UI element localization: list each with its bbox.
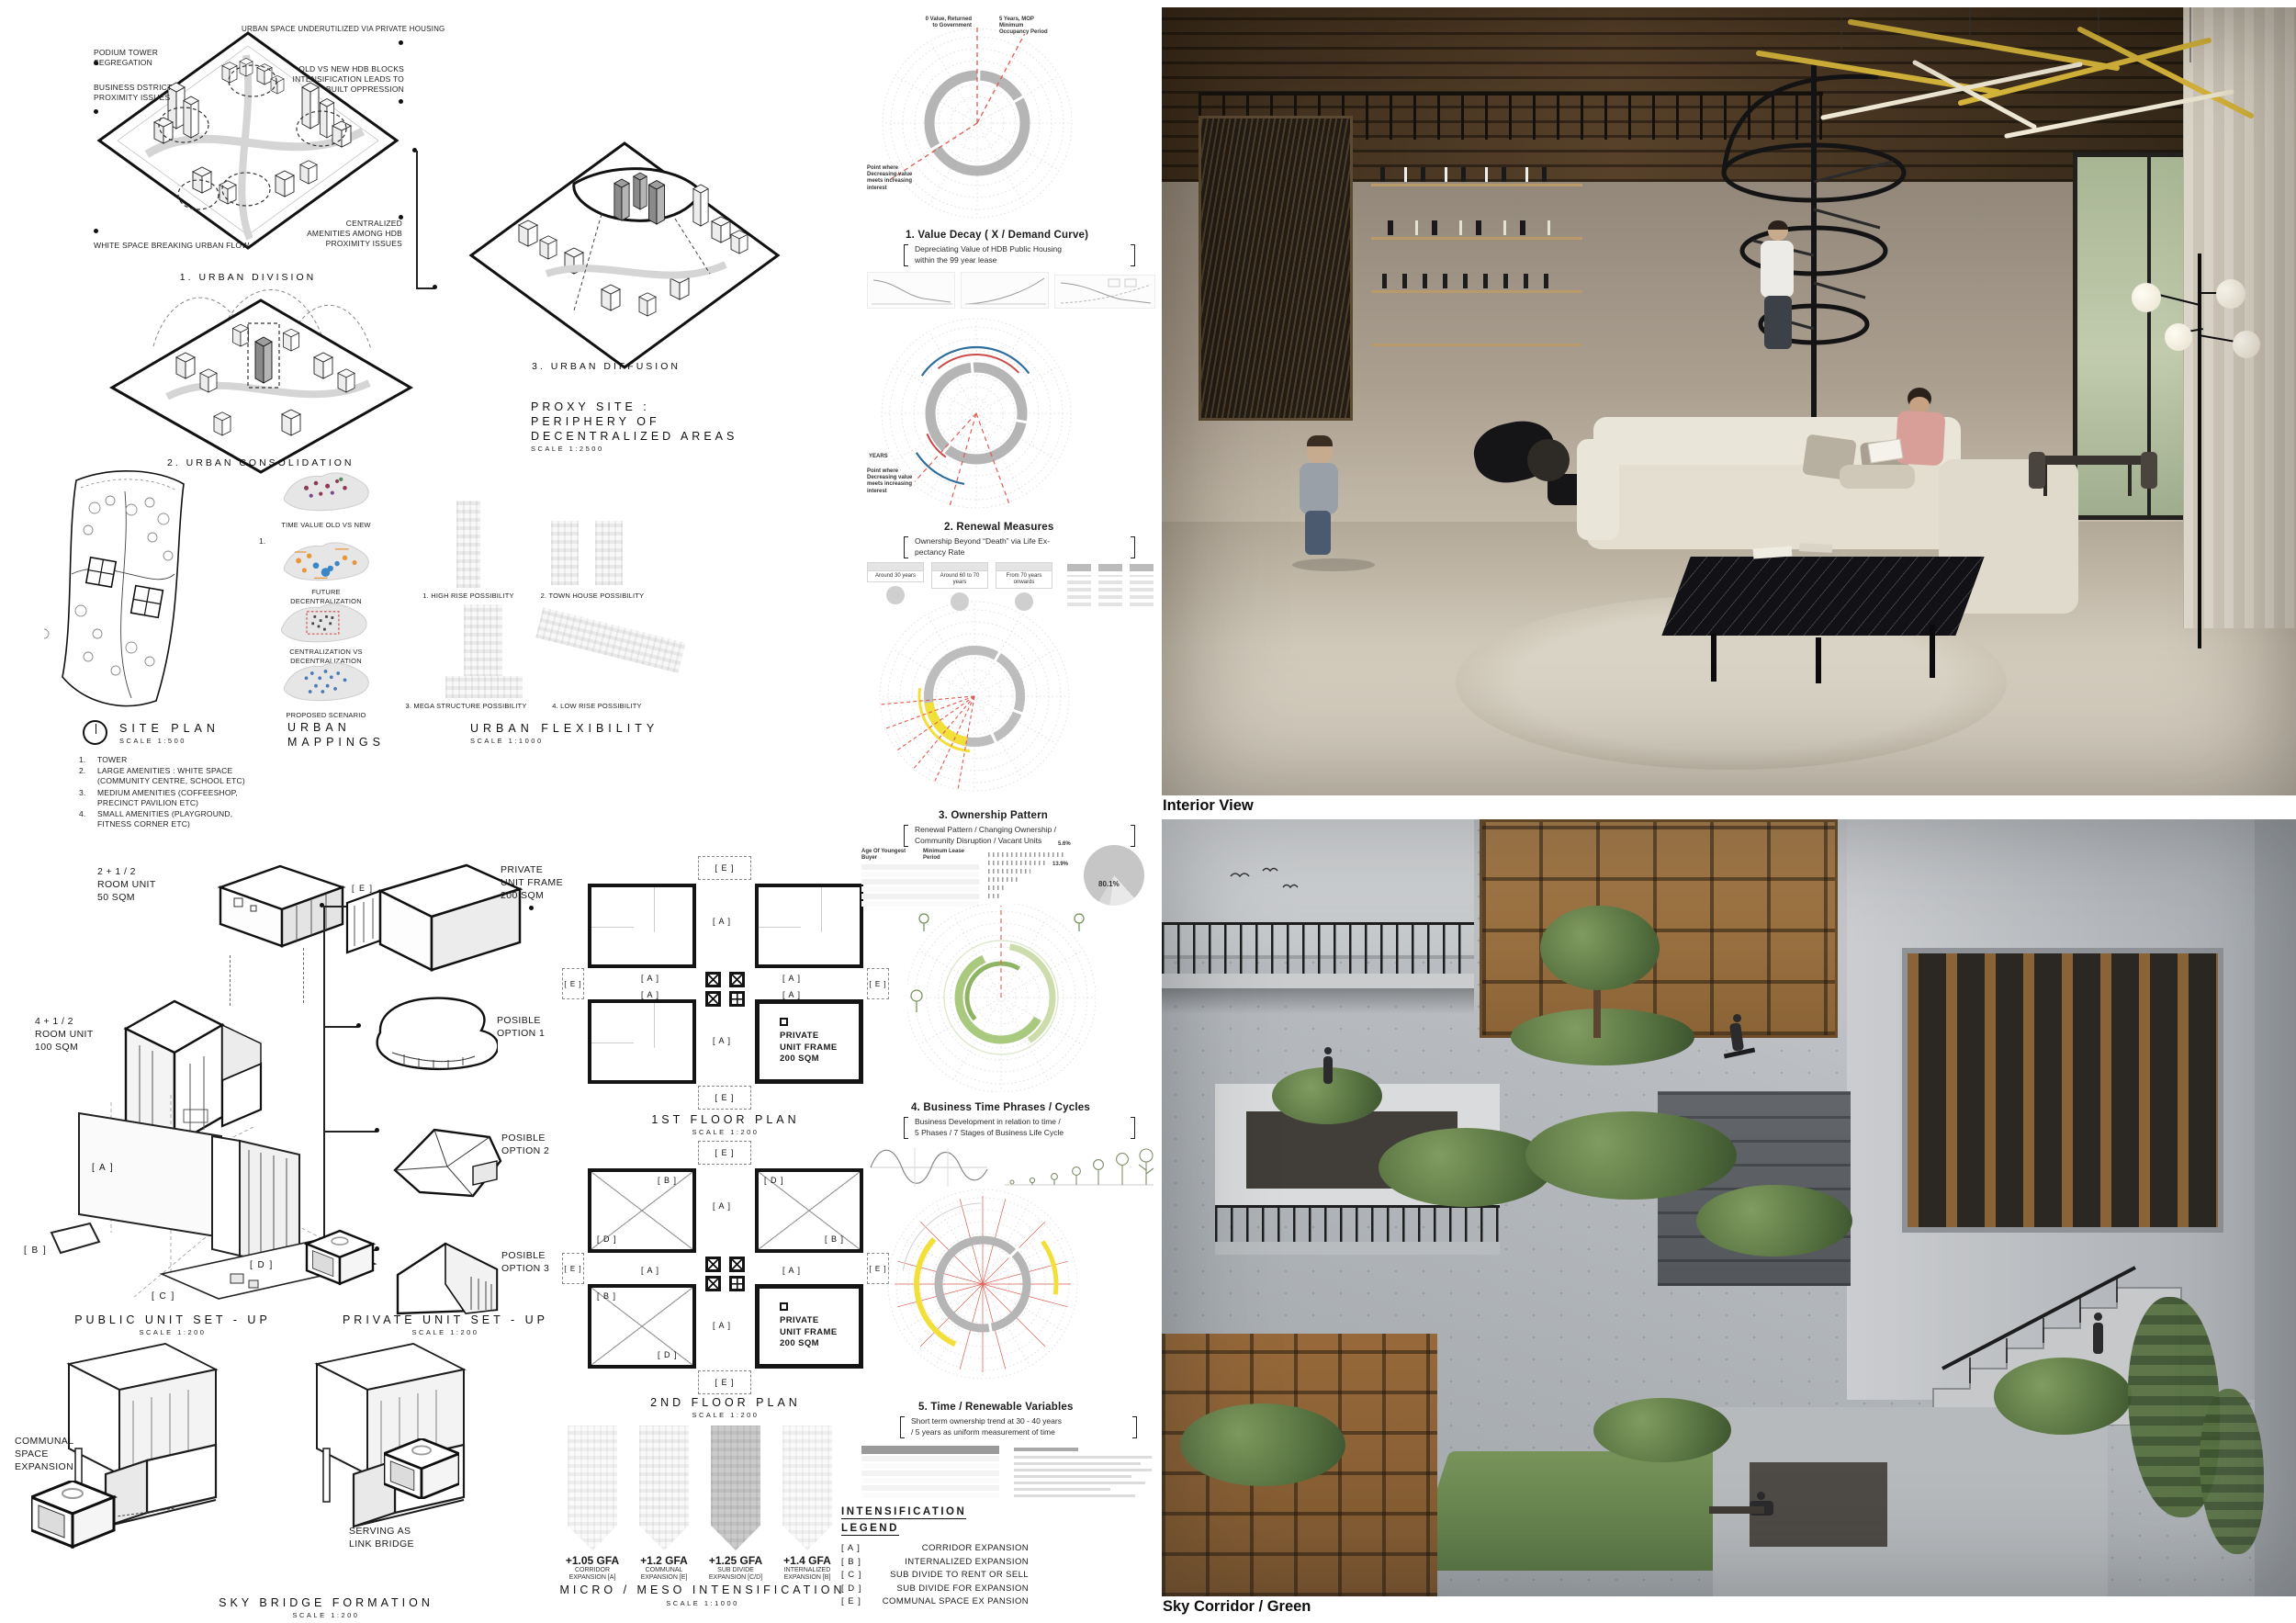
map-label-1: TIME VALUE OLD VS NEW <box>276 521 377 530</box>
large-unit-l2: ROOM UNIT <box>35 1028 94 1041</box>
table-row <box>861 886 979 892</box>
time-variables-title: 5. Time / Renewable Variables <box>918 1402 1074 1413</box>
plan1-e-top: [ E ] <box>715 863 734 873</box>
low-rise-glyph <box>535 607 685 673</box>
plan1-frame-l3: 200 SQM <box>780 1054 859 1065</box>
micro-meso-title: MICRO / MESO INTENSIFICATION <box>551 1584 854 1596</box>
communal-l1: COMMUNAL <box>15 1435 73 1448</box>
option1-label: POSIBLEOPTION 1 <box>497 1014 545 1040</box>
business-title: 4. Business Time Phrases / Cycles <box>911 1102 1090 1113</box>
plan1-quad-tl <box>588 884 696 968</box>
private-frame-iso <box>329 852 526 981</box>
plan2-e-bottom: [ E ] <box>715 1378 734 1387</box>
callout-whitespace: WHITE SPACE BREAKING URBAN FLOW <box>94 241 249 251</box>
tower1-d1: CORRIDOR <box>558 1567 626 1574</box>
legend-val-e: COMMUNAL SPACE EX PANSION <box>876 1596 1029 1606</box>
tower3-label: +1.25 GFASUB DIVIDEEXPANSION [C/D] <box>702 1554 770 1583</box>
communal-l2: SPACE <box>15 1448 73 1460</box>
option3-label: POSIBLEOPTION 3 <box>501 1249 549 1275</box>
s5-paragraph <box>1014 1448 1152 1497</box>
legend-title-2: LEGEND <box>841 1523 899 1536</box>
bracket-right <box>1131 1117 1135 1139</box>
communal-expansion-label: COMMUNALSPACEEXPANSION <box>15 1435 73 1474</box>
small-unit-l2: ROOM UNIT <box>97 878 156 891</box>
pie-label-main: 80.1% <box>1098 880 1120 889</box>
value-decay-ann-govt: 0 Value, Returned to Government <box>924 17 972 29</box>
legend-num: 4. <box>79 809 97 829</box>
skybridge-title: SKY BRIDGE FORMATION <box>207 1596 445 1609</box>
plan1-wing-right: [ E ] <box>867 968 889 999</box>
public-tag-a: [ A ] <box>92 1163 114 1173</box>
plan2-quad-bl: [ B ][ D ] <box>588 1284 696 1369</box>
plan2-tag: [ D ] <box>764 1176 784 1185</box>
large-unit-l3: 100 SQM <box>35 1041 94 1054</box>
tower4-label: +1.4 GFAINTERNALIZEDEXPANSION [B] <box>773 1554 841 1583</box>
bracket-left <box>904 1117 908 1139</box>
intensification-tower-3 <box>711 1426 760 1550</box>
town-house-glyph <box>551 521 579 585</box>
link-l1: SERVING AS <box>349 1525 414 1538</box>
map-future-decentralization <box>277 535 374 588</box>
plan1-wing-left: [ E ] <box>562 968 584 999</box>
plan1-e-bottom: [ E ] <box>715 1093 734 1102</box>
vignette <box>1162 7 2296 795</box>
legend-key-e: [ E ] <box>841 1596 876 1606</box>
option3-l2: OPTION 3 <box>501 1262 549 1275</box>
public-setup-iso <box>24 1086 423 1315</box>
large-unit-l1: 4 + 1 / 2 <box>35 1015 94 1028</box>
ownership-pattern-radial <box>869 593 1080 797</box>
plan2-a-corridor-bottom: [ A ] <box>713 1321 731 1330</box>
option2-label: POSIBLEOPTION 2 <box>501 1132 549 1157</box>
urban-consolidation-diagram <box>103 259 420 475</box>
proxy-site-line1: PROXY SITE : <box>531 400 650 413</box>
option1-l1: POSIBLE <box>497 1014 545 1027</box>
calendar-icon <box>932 563 987 571</box>
map-proposed <box>277 656 374 708</box>
urban-diffusion-label: 3. URBAN DIFFUSION <box>514 361 698 372</box>
calendar-icon <box>996 563 1052 571</box>
private-setup-title: PRIVATE UNIT SET - UP <box>331 1313 560 1326</box>
legend-key-c: [ C ] <box>841 1570 876 1580</box>
table-header-age: Age Of Youngest Buyer <box>861 849 917 862</box>
frame-l2: UNIT FRAME <box>501 876 563 889</box>
communal-l3: EXPANSION <box>15 1460 73 1473</box>
card3-label: From 70 years onwards <box>996 571 1052 588</box>
plan1-a-corridor-bottom: [ A ] <box>713 1036 731 1045</box>
value-decay-radial <box>874 6 1076 226</box>
plan1-e-right: [ E ] <box>869 980 886 988</box>
interior-view-render <box>1162 7 2296 795</box>
legend-val-d: SUB DIVIDE FOR EXPANSION <box>876 1584 1029 1594</box>
public-setup-scale: SCALE 1:200 <box>53 1328 292 1336</box>
flex-option-4: 4. LOW RISE POSSIBILITY <box>542 702 652 711</box>
callout-oldnew: OLD VS NEW HDB BLOCKS INTENSIFICATION LE… <box>292 64 404 96</box>
s1-chart-thumb <box>867 272 955 309</box>
legend-val-c: SUB DIVIDE TO RENT OR SELL <box>876 1570 1029 1580</box>
value-decay-ann-point: Point where Decreasing value meets incre… <box>867 165 918 192</box>
callout-dot <box>399 215 403 220</box>
callout-dot <box>399 99 403 104</box>
s4-sub1: Business Development in relation to time… <box>915 1117 1124 1128</box>
table-row <box>861 864 979 870</box>
map-marker: 1. <box>259 536 266 547</box>
business-cycles-radial <box>907 904 1096 1092</box>
option2-l2: OPTION 2 <box>501 1144 549 1157</box>
public-tag-b: [ B ] <box>24 1245 47 1256</box>
link-l2: LINK BRIDGE <box>349 1538 414 1550</box>
proxy-site-scale: SCALE 1:2500 <box>531 445 604 453</box>
callout-dot <box>94 61 98 65</box>
bracket-right <box>1131 825 1135 847</box>
small-unit-label: 2 + 1 / 2ROOM UNIT50 SQM <box>97 865 156 905</box>
bracket-right <box>1131 244 1135 266</box>
skybridge-cluster-2 <box>266 1336 528 1538</box>
callout-dot <box>399 40 403 45</box>
s3-sub1: Renewal Pattern / Changing Ownership / <box>915 825 1124 836</box>
plan1-wing-bottom: [ E ] <box>698 1086 751 1110</box>
card2-label: Around 60 to 70 years <box>932 571 987 588</box>
tower3-d1: SUB DIVIDE <box>702 1567 770 1574</box>
tower1-d2: EXPANSION [A] <box>558 1574 626 1582</box>
business-subtitle: Business Development in relation to time… <box>904 1117 1135 1139</box>
table-row <box>861 894 979 899</box>
plan2-quad-tl: [ B ][ D ] <box>588 1168 696 1253</box>
projection-line <box>303 948 304 1003</box>
tower2-label: +1.2 GFACOMMUNALEXPANSION [E] <box>630 1554 698 1583</box>
s5-sub1: Short term ownership trend at 30 - 40 ye… <box>911 1416 1126 1427</box>
public-setup-title: PUBLIC UNIT SET - UP <box>53 1313 292 1326</box>
option1-l2: OPTION 1 <box>497 1027 545 1040</box>
plan2-wing-bottom: [ E ] <box>698 1370 751 1394</box>
second-floor-title: 2ND FLOOR PLAN <box>560 1396 891 1409</box>
flex-option-2: 2. TOWN HOUSE POSSIBILITY <box>537 592 647 601</box>
plan1-private-frame: PRIVATE UNIT FRAME 200 SQM <box>755 999 863 1084</box>
tower2-d1: COMMUNAL <box>630 1567 698 1574</box>
renewal-subtitle: Ownership Beyond “Death” via Life Ex-pec… <box>904 536 1135 558</box>
plan1-frame-l1: PRIVATE <box>780 1031 859 1043</box>
option1-iso <box>360 979 498 1076</box>
frame-icon <box>780 1018 788 1026</box>
plan2-a-mid: [ A ] <box>641 1266 659 1275</box>
presentation-board: URBAN SPACE UNDERUTILIZED VIA PRIVATE HO… <box>0 0 2296 1623</box>
plan2-core <box>729 1257 745 1272</box>
link-bridge-cube <box>384 1438 459 1499</box>
tower2-d2: EXPANSION [E] <box>630 1574 698 1582</box>
first-floor-plan: [ E ] [ A ] [ E ] [ E ] [ A ] [ A ] [ A … <box>562 856 889 1110</box>
legend-key-b: [ B ] <box>841 1557 876 1567</box>
ownership-pie <box>1084 845 1144 906</box>
legend-text: LARGE AMENITIES : WHITE SPACE (COMMUNITY… <box>97 766 267 786</box>
site-plan-title: SITE PLAN <box>119 722 219 735</box>
plan1-wing-top: [ E ] <box>698 856 751 880</box>
plan1-a-mid: [ A ] <box>782 990 801 999</box>
frame-l1: PRIVATE <box>501 863 563 876</box>
urban-mappings-title-2: MAPPINGS <box>287 736 385 749</box>
plan1-quad-tr <box>755 884 863 968</box>
callout-centralized: CENTRALIZED AMENITIES AMONG HDB PROXIMIT… <box>305 219 402 250</box>
ownership-subtitle: Renewal Pattern / Changing Ownership /Co… <box>904 825 1135 847</box>
link-bridge-label: SERVING ASLINK BRIDGE <box>349 1525 414 1550</box>
map-label-4: PROPOSED SCENARIO <box>280 711 372 720</box>
second-floor-scale: SCALE 1:200 <box>560 1411 891 1419</box>
frame-e-tag: [ E ] <box>352 884 374 893</box>
legend-text: SMALL AMENITIES (PLAYGROUND, FITNESS COR… <box>97 809 267 829</box>
vignette <box>1162 819 2296 1596</box>
bracket-left <box>904 825 908 847</box>
table-header-lease: Minimum Lease Period <box>923 849 979 862</box>
ownership-table: Age Of Youngest BuyerMinimum Lease Perio… <box>861 849 979 908</box>
plan2-wing-left: [ E ] <box>562 1253 584 1284</box>
bracket-right <box>1131 536 1135 558</box>
site-plan-drawing <box>44 464 214 716</box>
branch-line <box>323 1026 358 1028</box>
pie-label-mid: 13.9% <box>1052 862 1068 868</box>
plan2-a-mid: [ A ] <box>782 1266 801 1275</box>
plan2-tag: [ B ] <box>658 1176 677 1185</box>
north-arrow-icon <box>83 720 107 745</box>
skybridge-scale: SCALE 1:200 <box>207 1611 445 1619</box>
plan2-e-top: [ E ] <box>715 1148 734 1157</box>
map-time-value <box>277 467 374 517</box>
urban-mappings-title-1: URBAN <box>287 721 351 734</box>
s5-table <box>861 1446 999 1500</box>
plan1-core <box>729 972 745 987</box>
ownership-title: 3. Ownership Pattern <box>939 810 1048 821</box>
option2-l1: POSIBLE <box>501 1132 549 1144</box>
plan2-tag: [ B ] <box>597 1291 616 1301</box>
s2-sub2: pectancy Rate <box>915 547 1124 558</box>
town-house-glyph <box>595 521 623 585</box>
large-unit-label: 4 + 1 / 2ROOM UNIT100 SQM <box>35 1015 94 1054</box>
legend-num: 3. <box>79 788 97 808</box>
bracket-left <box>904 536 908 558</box>
plan2-frame-l1: PRIVATE <box>780 1315 859 1327</box>
table-row <box>861 879 979 885</box>
time-variables-subtitle: Short term ownership trend at 30 - 40 ye… <box>900 1416 1137 1438</box>
plan2-frame-l3: 200 SQM <box>780 1338 859 1350</box>
plan2-a-corridor-top: [ A ] <box>713 1201 731 1211</box>
proxy-site-line3: DECENTRALIZED AREAS <box>531 430 737 443</box>
tower1-label: +1.05 GFACORRIDOREXPANSION [A] <box>558 1554 626 1583</box>
legend-num: 2. <box>79 766 97 786</box>
frame-l3: 200 SQM <box>501 889 563 902</box>
s2-sub1: Ownership Beyond “Death” via Life Ex- <box>915 536 1124 547</box>
callout-podium: PODIUM TOWER SEGREGATION <box>94 48 204 68</box>
proxy-site-line2: PERIPHERY OF <box>531 415 660 428</box>
sky-corridor-caption: Sky Corridor / Green <box>1163 1598 1311 1616</box>
plan1-quad-bl <box>588 999 696 1084</box>
plan2-private-frame: PRIVATE UNIT FRAME 200 SQM <box>755 1284 863 1369</box>
plan1-e-left: [ E ] <box>564 980 581 988</box>
plan2-tag: [ D ] <box>597 1234 617 1244</box>
bracket-left <box>900 1416 905 1438</box>
public-tag-c: [ C ] <box>152 1291 175 1302</box>
legend-val-b: INTERNALIZED EXPANSION <box>876 1557 1029 1567</box>
first-floor-scale: SCALE 1:200 <box>560 1128 891 1136</box>
renewal-title: 2. Renewal Measures <box>944 522 1054 533</box>
flex-option-1: 1. HIGH RISE POSSIBILITY <box>413 592 523 601</box>
plan2-core-plus <box>729 1276 745 1291</box>
renewal-stats <box>1067 564 1154 612</box>
tower4-d2: EXPANSION [B] <box>773 1574 841 1582</box>
intensification-tower-1 <box>568 1426 617 1550</box>
legend-key-d: [ D ] <box>841 1584 876 1594</box>
small-unit-l3: 50 SQM <box>97 891 156 904</box>
private-frame-label: PRIVATEUNIT FRAME200 SQM <box>501 863 563 903</box>
site-plan-legend: 1.TOWER 2.LARGE AMENITIES : WHITE SPACE … <box>79 755 267 830</box>
tower3-d2: EXPANSION [C/D] <box>702 1574 770 1582</box>
connector-dot <box>433 285 437 289</box>
plan2-tag: [ D ] <box>658 1350 678 1359</box>
plan2-wing-top: [ E ] <box>698 1141 751 1165</box>
legend-val-a: CORRIDOR EXPANSION <box>876 1543 1029 1553</box>
option3-l1: POSIBLE <box>501 1249 549 1262</box>
s1-sub1: Depreciating Value of HDB Public Housing <box>915 244 1124 255</box>
intensification-tower-2 <box>639 1426 689 1550</box>
s1-chart-thumb <box>1054 275 1155 309</box>
s5-sub2: / 5 years as uniform measurement of time <box>911 1427 1126 1438</box>
calendar-icon <box>868 563 923 571</box>
urban-flexibility-scale: SCALE 1:1000 <box>470 737 544 745</box>
tower2-gfa: +1.2 GFA <box>630 1554 698 1567</box>
value-decay-ann-mop: 5 Years, MOP Minimum Occupancy Period <box>999 17 1051 37</box>
s4-sub2: 5 Phases / 7 Stages of Business Life Cyc… <box>915 1128 1124 1139</box>
time-variables-radial <box>880 1185 1086 1382</box>
frame-dot <box>529 906 534 910</box>
tower3-gfa: +1.25 GFA <box>702 1554 770 1567</box>
table-row <box>861 872 979 877</box>
legend-title-1: INTENSIFICATION <box>841 1506 966 1519</box>
mega-structure-podium <box>445 676 523 698</box>
plan1-core <box>705 991 721 1007</box>
micro-meso-scale: SCALE 1:1000 <box>551 1599 854 1607</box>
plan1-a-mid: [ A ] <box>641 974 659 983</box>
flex-option-3: 3. MEGA STRUCTURE POSSIBILITY <box>404 702 528 711</box>
plan2-tag: [ B ] <box>825 1234 844 1244</box>
mega-structure-glyph <box>464 604 502 678</box>
urban-flexibility-title: URBAN FLEXIBILITY <box>470 722 658 735</box>
plan2-e-left: [ E ] <box>564 1265 581 1273</box>
bracket-left <box>904 244 908 266</box>
callout-dot <box>94 109 98 114</box>
frame-icon <box>780 1302 788 1311</box>
private-setup-scale: SCALE 1:200 <box>331 1328 560 1336</box>
card1-label: Around 30 years <box>868 571 923 581</box>
first-floor-title: 1ST FLOOR PLAN <box>560 1113 891 1126</box>
sky-corridor-render <box>1162 819 2296 1596</box>
value-decay-subtitle: Depreciating Value of HDB Public Housing… <box>904 244 1135 266</box>
interior-view-caption: Interior View <box>1163 797 1254 815</box>
legend-text: MEDIUM AMENITIES (COFFEESHOP, PRECINCT P… <box>97 788 267 808</box>
plan2-frame-l2: UNIT FRAME <box>780 1327 859 1339</box>
plan1-frame-l2: UNIT FRAME <box>780 1043 859 1054</box>
s1-sub2: within the 99 year lease <box>915 255 1124 266</box>
ownership-tally <box>988 852 1064 898</box>
intensification-tower-4 <box>782 1426 832 1550</box>
plan2-quad-tr: [ D ][ B ] <box>755 1168 863 1253</box>
s1-chart-thumb <box>961 272 1049 309</box>
legend-num: 1. <box>79 755 97 765</box>
tower4-d1: INTERNALIZED <box>773 1567 841 1574</box>
plan1-a-corridor-top: [ A ] <box>713 917 731 926</box>
bracket-right <box>1132 1416 1137 1438</box>
urban-diffusion-diagram <box>464 136 785 389</box>
intensification-legend: INTENSIFICATION LEGEND [ A ]CORRIDOR EXP… <box>841 1503 1029 1606</box>
second-floor-plan: [ E ] [ B ][ D ] [ D ][ B ] [ A ] [ E ] … <box>562 1141 889 1394</box>
public-tag-d: [ D ] <box>250 1260 274 1270</box>
s3-sub2: Community Disruption / Vacant Units <box>915 836 1124 847</box>
map-centralization <box>273 598 374 648</box>
legend-text: TOWER <box>97 755 267 765</box>
communal-cube <box>31 1481 118 1554</box>
plan2-core <box>705 1257 721 1272</box>
renewal-ann-point: Point where Decreasing value meets incre… <box>867 468 918 495</box>
legend-key-a: [ A ] <box>841 1543 876 1553</box>
pie-label-small: 5.6% <box>1058 841 1071 848</box>
plan2-core <box>705 1276 721 1291</box>
callout-business: BUSINESS DSTRICT PROXIMITY ISSUES <box>94 83 182 103</box>
renewal-axis-label: YEARS <box>869 454 888 460</box>
small-unit-l1: 2 + 1 / 2 <box>97 865 156 878</box>
tower1-gfa: +1.05 GFA <box>558 1554 626 1567</box>
callout-dot <box>94 229 98 233</box>
plan1-core-plus <box>729 991 745 1007</box>
value-decay-title: 1. Value Decay ( X / Demand Curve) <box>906 230 1088 241</box>
site-plan-scale: SCALE 1:500 <box>119 737 186 745</box>
tower4-gfa: +1.4 GFA <box>773 1554 841 1567</box>
plan1-a-mid: [ A ] <box>641 990 659 999</box>
plan1-a-mid: [ A ] <box>782 974 801 983</box>
high-rise-glyph <box>456 501 480 588</box>
plan1-core <box>705 972 721 987</box>
callout-urban-space: URBAN SPACE UNDERUTILIZED VIA PRIVATE HO… <box>242 25 407 35</box>
